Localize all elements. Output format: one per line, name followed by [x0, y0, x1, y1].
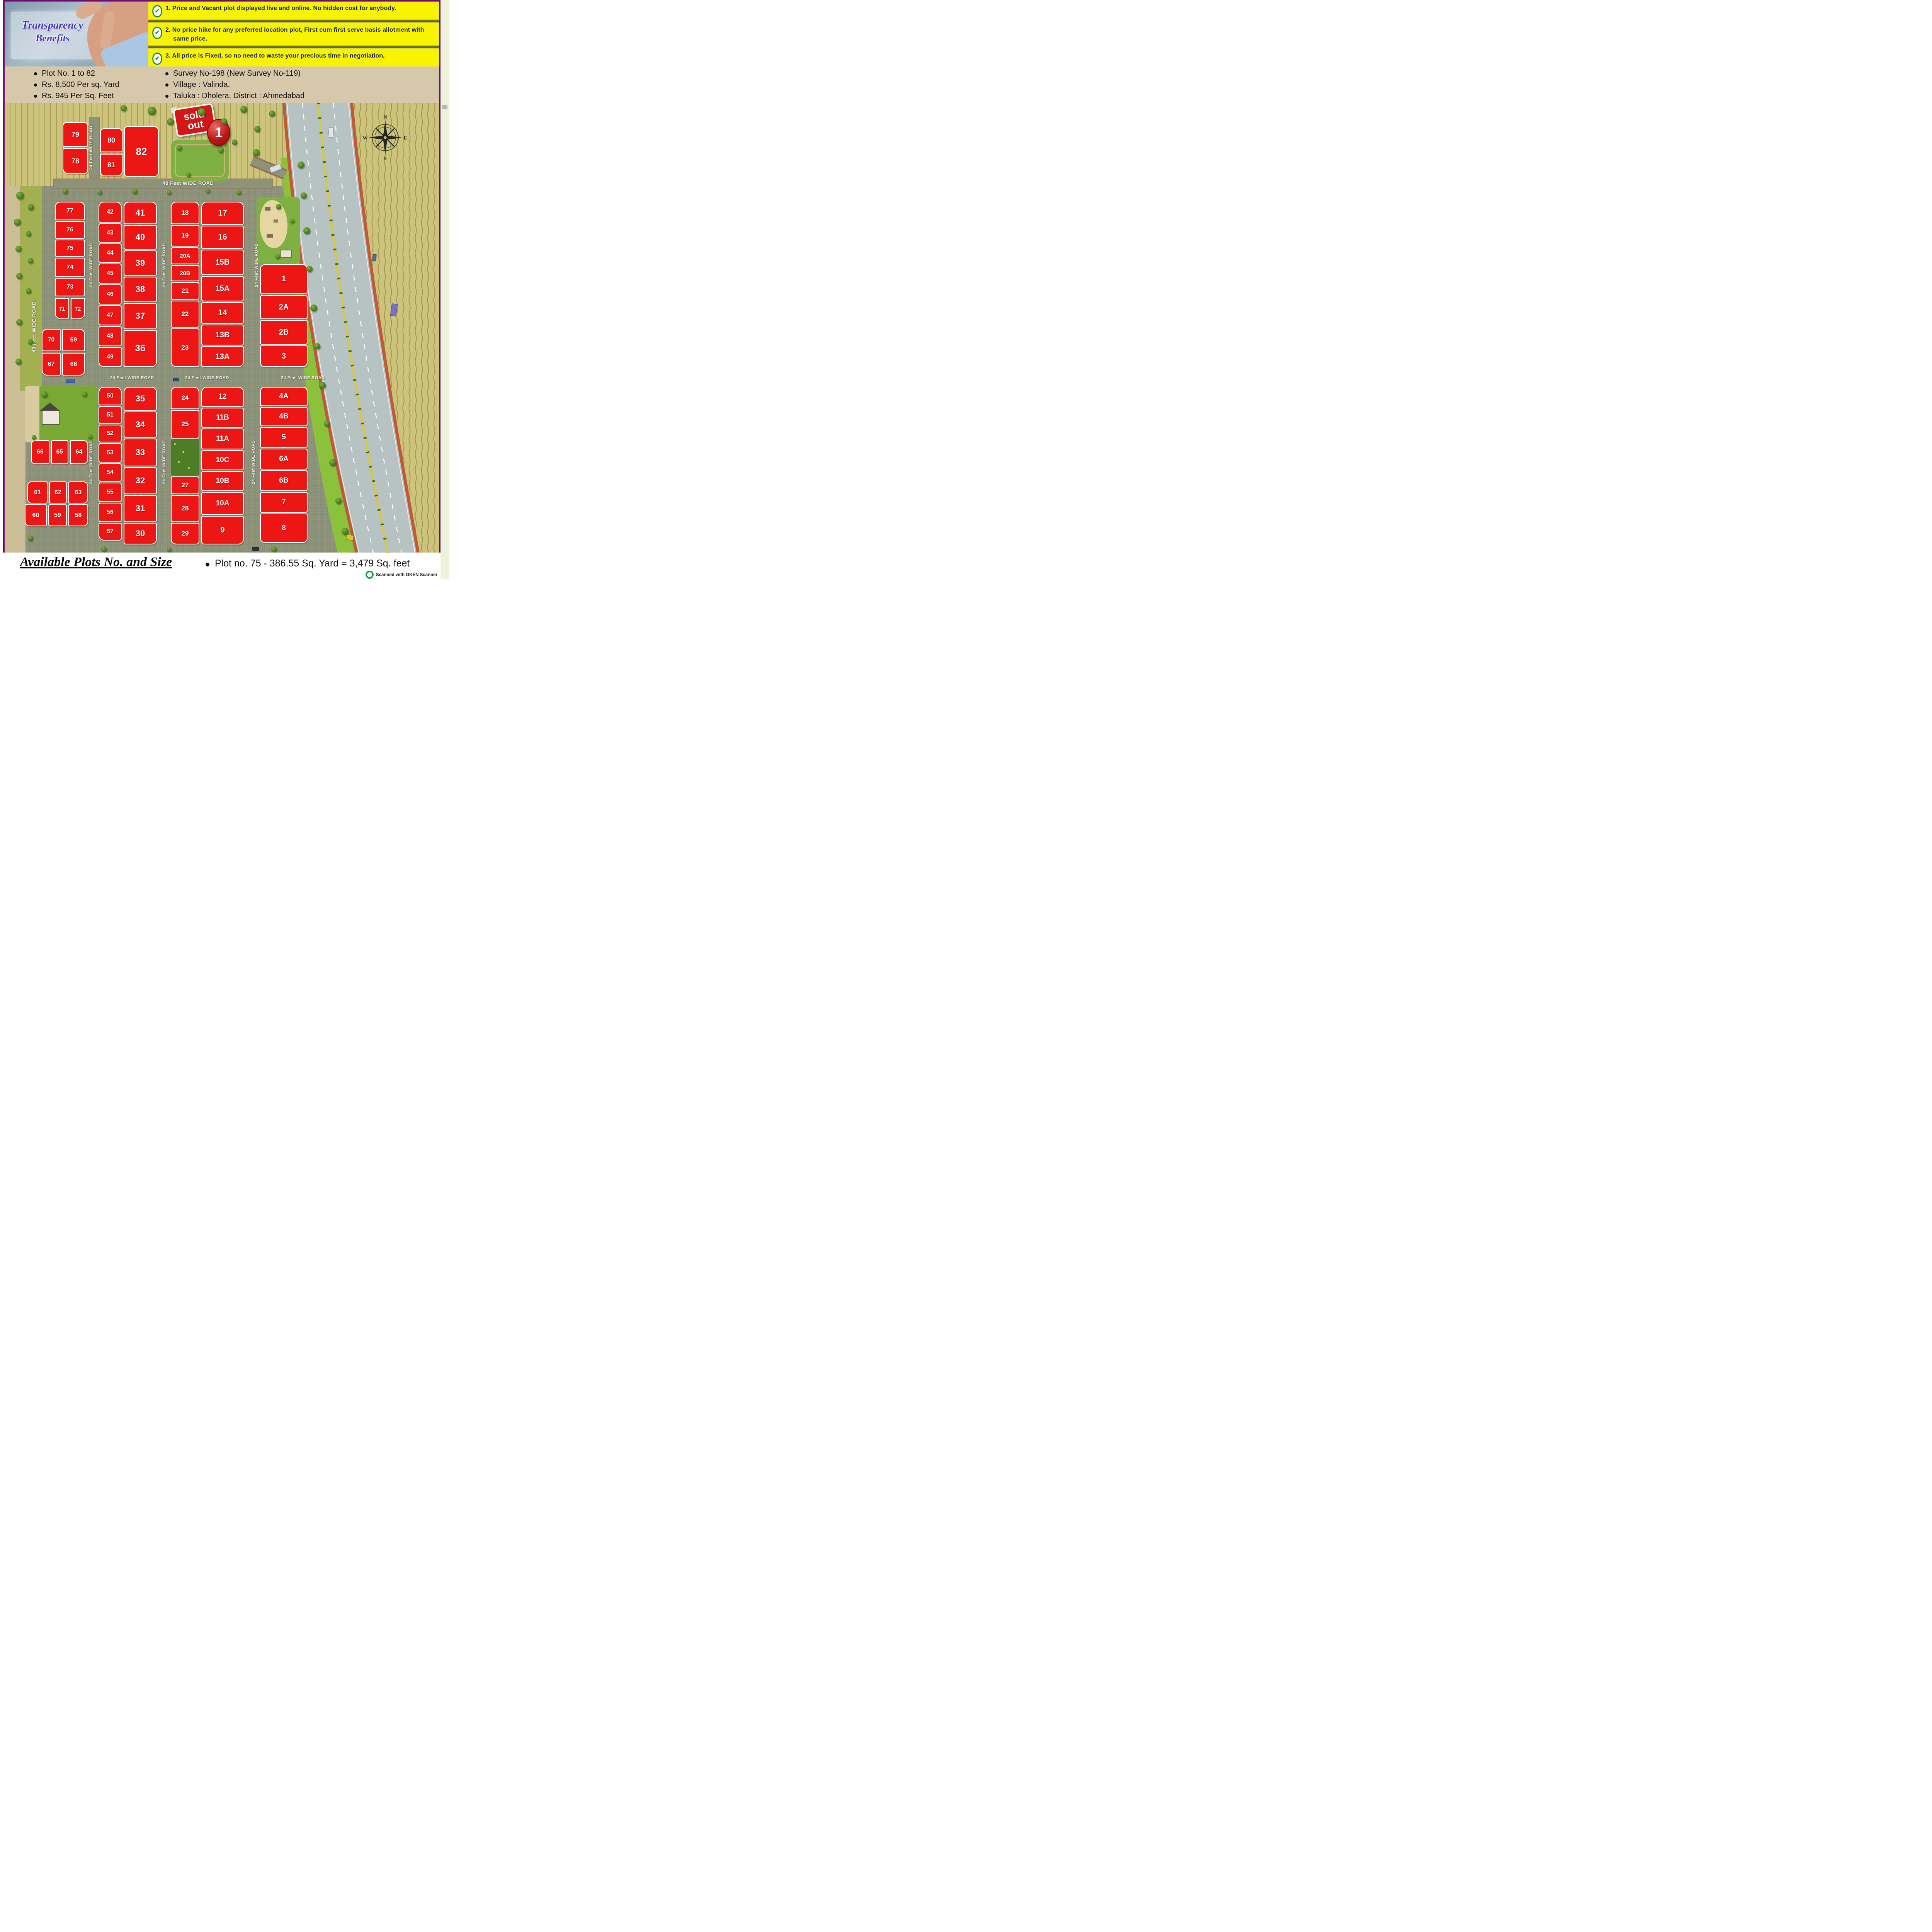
plot-15B: 15B — [201, 250, 244, 275]
car-icon — [372, 254, 377, 262]
check-icon: ✔ — [152, 27, 162, 39]
plot-50: 50 — [99, 387, 122, 405]
plot-82: 82 — [124, 126, 159, 177]
plot-31: 31 — [124, 495, 157, 522]
plot-2B: 2B — [260, 320, 308, 345]
plot-68: 68 — [62, 353, 85, 376]
plot-4B: 4B — [260, 407, 308, 426]
plot-13B: 13B — [201, 325, 244, 345]
plot-25: 25 — [171, 410, 199, 439]
plot-44: 44 — [99, 243, 122, 263]
plot-78: 78 — [63, 148, 88, 174]
page: Transparency Benefits ✔1. Price and Vaca… — [0, 0, 449, 579]
road-label: 40 Feet WIDE ROAD — [31, 301, 37, 353]
plot-1: 1 — [260, 264, 308, 294]
benefit-text: 2. No price hike for any preferred locat… — [165, 26, 434, 43]
road-label: 24 Feet WIDE ROAD — [162, 440, 167, 484]
plot-57: 57 — [99, 523, 122, 541]
plot-55: 55 — [99, 483, 122, 502]
check-icon: ✔ — [152, 5, 162, 17]
tree-icon — [28, 339, 33, 345]
plot-13A: 13A — [201, 346, 244, 367]
tree-icon — [290, 219, 294, 223]
tree-icon — [15, 246, 22, 252]
clubhouse — [42, 410, 60, 425]
scanner-text: Scanned with OKEN Scanner — [376, 573, 437, 577]
plot-79: 79 — [63, 122, 88, 147]
tree-icon — [232, 139, 237, 145]
plot-24: 24 — [171, 387, 199, 409]
plot-21: 21 — [171, 282, 199, 300]
road-label: 24 Feet WIDE ROAD — [89, 440, 94, 484]
tree-icon — [16, 273, 22, 279]
plot-54: 54 — [99, 463, 122, 482]
road-label: 24 Feet WIDE ROAD — [89, 126, 94, 170]
tree-icon — [26, 231, 31, 236]
plot-75: 75 — [55, 240, 85, 257]
plot-22: 22 — [171, 301, 199, 328]
plot-41: 41 — [124, 202, 157, 224]
plot-77: 77 — [55, 202, 85, 220]
plot-11B: 11B — [201, 408, 244, 428]
page-margin-strip — [440, 0, 449, 579]
plot-33: 33 — [124, 439, 157, 466]
plot-9: 9 — [201, 516, 244, 544]
tree-icon — [63, 189, 68, 194]
site-map: N E S W — [5, 103, 439, 553]
tree-icon — [306, 266, 313, 272]
plot-37: 37 — [124, 303, 157, 329]
tree-icon — [15, 359, 22, 365]
tree-icon — [167, 118, 174, 125]
tree-icon — [167, 547, 172, 552]
road-label: 24 Feet WIDE ROAD — [251, 440, 256, 484]
plot-11A: 11A — [201, 429, 244, 449]
plot-62: 62 — [49, 481, 67, 503]
tree-icon — [97, 190, 102, 195]
tree-icon — [28, 536, 33, 541]
tree-icon — [253, 149, 260, 156]
plot-63: 63 — [68, 481, 88, 503]
plot-60: 60 — [25, 504, 47, 526]
plot-8: 8 — [260, 514, 308, 543]
scrollbar-thumb[interactable] — [442, 105, 447, 109]
tree-icon — [324, 420, 330, 427]
compass-s: S — [384, 155, 386, 161]
tree-icon — [177, 145, 182, 151]
info-item: Village : Valinda, — [163, 79, 439, 90]
check-icon: ✔ — [152, 53, 162, 65]
plot-70: 70 — [42, 329, 61, 351]
info-item: Rs. 8,500 Per sq. Yard — [32, 79, 148, 90]
benefit-text: 1. Price and Vacant plot displayed live … — [165, 4, 396, 13]
plot-51: 51 — [99, 406, 122, 424]
plot-28: 28 — [171, 495, 199, 522]
tree-icon — [271, 546, 277, 552]
car-icon — [173, 378, 179, 381]
plot-46: 46 — [99, 284, 122, 304]
plot-20B: 20B — [171, 265, 199, 281]
tree-icon — [16, 192, 24, 199]
tree-icon — [101, 546, 107, 552]
poster: Transparency Benefits ✔1. Price and Vaca… — [3, 0, 440, 553]
plot-81: 81 — [100, 154, 122, 176]
top-banner: Transparency Benefits ✔1. Price and Vaca… — [5, 2, 439, 66]
tree-icon — [26, 288, 31, 294]
tree-icon — [240, 106, 247, 113]
road-label: 24 Feet WIDE ROAD — [185, 376, 229, 380]
tree-icon — [82, 391, 87, 397]
plot-14: 14 — [201, 302, 244, 324]
tree-icon — [335, 498, 342, 504]
truck-icon — [328, 127, 334, 138]
banner-title-line1: Transparency — [13, 19, 92, 32]
info-bar: Plot No. 1 to 82Rs. 8,500 Per sq. YardRs… — [5, 66, 439, 103]
plot-6B: 6B — [260, 470, 308, 491]
plot-5: 5 — [260, 427, 308, 448]
plot-59: 59 — [48, 504, 67, 526]
plot-73: 73 — [55, 278, 85, 296]
oken-scanner-icon — [366, 571, 374, 579]
benefit-item: ✔1. Price and Vacant plot displayed live… — [148, 2, 439, 19]
plot-48: 48 — [99, 326, 122, 346]
plot-64: 64 — [70, 440, 88, 464]
banner-title: Transparency Benefits — [13, 19, 92, 45]
road-label: 24 Feet WIDE ROAD — [89, 243, 94, 287]
tree-icon — [303, 227, 310, 234]
plot-34: 34 — [124, 412, 157, 438]
tree-icon — [310, 304, 317, 311]
plot-69: 69 — [62, 329, 85, 351]
plot-43: 43 — [99, 223, 122, 243]
plot-53: 53 — [99, 443, 122, 463]
tree-icon — [121, 105, 127, 111]
tree-icon — [198, 108, 206, 116]
plot-15A: 15A — [201, 276, 244, 301]
plot-47: 47 — [99, 305, 122, 325]
tree-icon — [16, 319, 22, 325]
benefit-item: ✔3. All price is Fixed, so no need to wa… — [148, 49, 439, 66]
info-item: Taluka : Dholera, District : Ahmedabad — [163, 90, 439, 102]
info-left-column: Plot No. 1 to 82Rs. 8,500 Per sq. YardRs… — [32, 68, 148, 102]
info-right-column: Survey No-198 (New Survey No-119)Village… — [163, 68, 439, 102]
sold-out-text2: out — [187, 119, 204, 131]
plot-36: 36 — [124, 330, 157, 367]
plot-52: 52 — [99, 425, 122, 442]
tree-icon — [41, 391, 48, 398]
plot-45: 45 — [99, 264, 122, 284]
park-mid — [171, 439, 199, 476]
plot-23: 23 — [171, 328, 199, 367]
info-item: Rs. 945 Per Sq. Feet — [32, 90, 148, 102]
plot-65: 65 — [51, 440, 68, 464]
road-label: 24 Feet WIDE ROAD — [281, 376, 325, 380]
tree-icon — [148, 107, 156, 115]
tree-icon — [329, 459, 336, 466]
compass-n: N — [383, 114, 387, 120]
tree-icon — [218, 148, 224, 153]
tree-icon — [269, 111, 275, 117]
plot-17: 17 — [201, 202, 244, 225]
digger-icon — [346, 534, 354, 541]
tree-icon — [132, 189, 138, 194]
plot-66: 66 — [31, 440, 49, 464]
plot-72: 72 — [71, 298, 85, 319]
plot-40: 40 — [124, 225, 157, 250]
tree-icon — [301, 192, 307, 199]
plot-3: 3 — [260, 345, 308, 367]
phase-number-badge: 1 — [207, 119, 230, 146]
road-label: 24 Feet WIDE ROAD — [110, 376, 154, 380]
tree-icon — [319, 382, 326, 389]
plot-58: 58 — [68, 504, 88, 526]
road-label: 40 Feet WIDE ROAD — [163, 180, 214, 186]
tree-icon — [298, 162, 304, 168]
scanner-note: Scanned with OKEN Scanner — [366, 571, 437, 579]
tree-icon — [186, 172, 191, 177]
tree-icon — [342, 528, 349, 535]
tree-icon — [254, 126, 260, 132]
plot-16: 16 — [201, 226, 244, 249]
plot-7: 7 — [260, 492, 308, 513]
plot-10C: 10C — [201, 450, 244, 470]
road-label: 24 Feet WIDE ROAD — [162, 243, 167, 287]
plot-27: 27 — [171, 476, 199, 494]
plot-71: 71 — [55, 298, 69, 319]
plot-10B: 10B — [201, 471, 244, 491]
tree-icon — [236, 190, 241, 195]
tree-icon — [314, 343, 320, 349]
tree-icon — [221, 118, 227, 124]
plot-74: 74 — [55, 258, 85, 277]
transparency-photo: Transparency Benefits — [5, 2, 148, 66]
compass-w: W — [363, 135, 368, 141]
plot-38: 38 — [124, 277, 157, 302]
tree-icon — [28, 258, 33, 264]
footer-heading: Available Plots No. and Size — [20, 555, 172, 570]
plot-35: 35 — [124, 387, 157, 411]
plot-61: 61 — [27, 481, 48, 503]
plot-32: 32 — [124, 467, 157, 494]
benefits-list: ✔1. Price and Vacant plot displayed live… — [148, 2, 439, 66]
plot-18: 18 — [171, 202, 199, 224]
plot-67: 67 — [42, 353, 61, 376]
info-item: Survey No-198 (New Survey No-119) — [163, 68, 439, 79]
tree-icon — [88, 434, 92, 439]
tree-icon — [32, 435, 36, 440]
compass-e: E — [404, 135, 407, 141]
tree-icon — [276, 204, 281, 209]
tree-icon — [275, 254, 280, 259]
banner-title-line2: Benefits — [13, 32, 92, 45]
benefit-divider — [148, 45, 439, 49]
plot-20A: 20A — [171, 247, 199, 264]
benefit-divider — [148, 19, 439, 23]
plot-30: 30 — [124, 523, 157, 544]
tree-icon — [14, 219, 21, 226]
plot-39: 39 — [124, 250, 157, 276]
plot-19: 19 — [171, 225, 199, 247]
benefit-item: ✔2. No price hike for any preferred loca… — [148, 23, 439, 45]
plot-29: 29 — [171, 523, 199, 544]
tree-icon — [206, 189, 210, 193]
plot-76: 76 — [55, 221, 85, 239]
bus-icon — [66, 379, 75, 383]
info-item: Plot No. 1 to 82 — [32, 68, 148, 79]
plot-6A: 6A — [260, 449, 308, 469]
tree-icon — [167, 190, 172, 195]
footer-plot-size: Plot no. 75 - 386.55 Sq. Yard = 3,479 Sq… — [215, 558, 410, 569]
plot-4A: 4A — [260, 387, 308, 406]
plot-49: 49 — [99, 347, 122, 367]
benefit-text: 3. All price is Fixed, so no need to was… — [165, 52, 385, 60]
plot-56: 56 — [99, 503, 122, 522]
plot-12: 12 — [201, 387, 244, 407]
car-icon — [252, 547, 259, 551]
plot-80: 80 — [100, 128, 122, 152]
tree-icon — [28, 204, 34, 210]
road-label: 24 Feet WIDE ROAD — [254, 243, 259, 287]
plot-42: 42 — [99, 202, 122, 223]
plot-2A: 2A — [260, 295, 308, 319]
plot-10A: 10A — [201, 492, 244, 515]
